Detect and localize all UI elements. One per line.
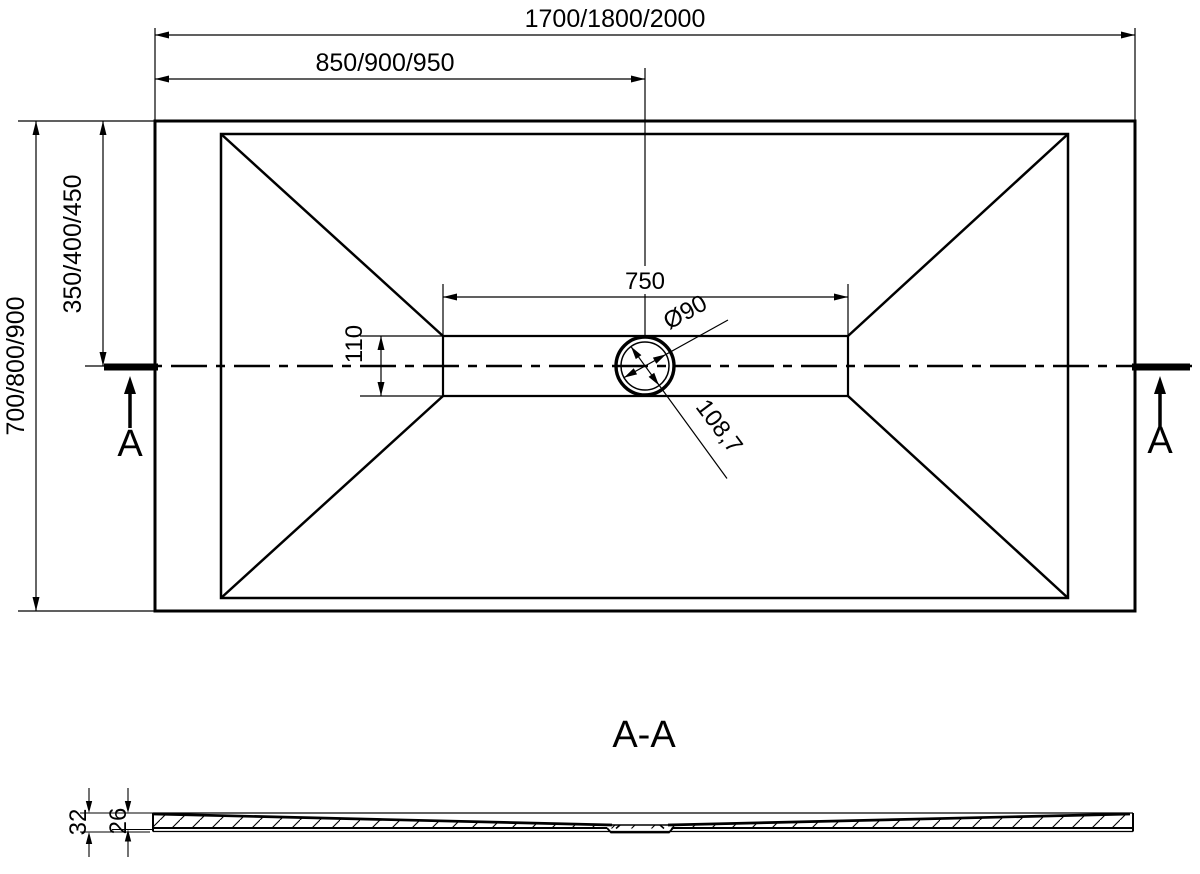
section-title: A-A (612, 714, 676, 756)
dim-overall-height: 32 (65, 809, 92, 836)
section-hatch-area (153, 814, 1133, 829)
dim-half-width: 350/400/450 (59, 174, 87, 313)
dim-base-height: 26 (105, 808, 132, 835)
shower-tray-drawing: 1700/1800/2000 850/900/950 700/800/900 3… (0, 0, 1200, 874)
section-marker-left-label: A (117, 423, 143, 465)
dim-drain-diagonal: 108,7 (690, 394, 748, 458)
dim-half-length: 850/900/950 (315, 49, 454, 77)
section-cut-markers: A A (104, 367, 1190, 465)
dim-channel-length: 750 (625, 268, 665, 295)
dim-overall-length: 1700/1800/2000 (525, 5, 706, 33)
section-profile (153, 813, 1133, 833)
technical-drawing-page: 1700/1800/2000 850/900/950 700/800/900 3… (0, 0, 1200, 874)
dim-channel-width: 110 (341, 325, 368, 363)
dimension-lines (18, 28, 1135, 611)
dim-overall-width: 700/800/900 (2, 296, 30, 435)
dimension-arrowheads (33, 32, 1136, 612)
top-view (108, 121, 1192, 611)
section-marker-right-label: A (1147, 420, 1173, 462)
